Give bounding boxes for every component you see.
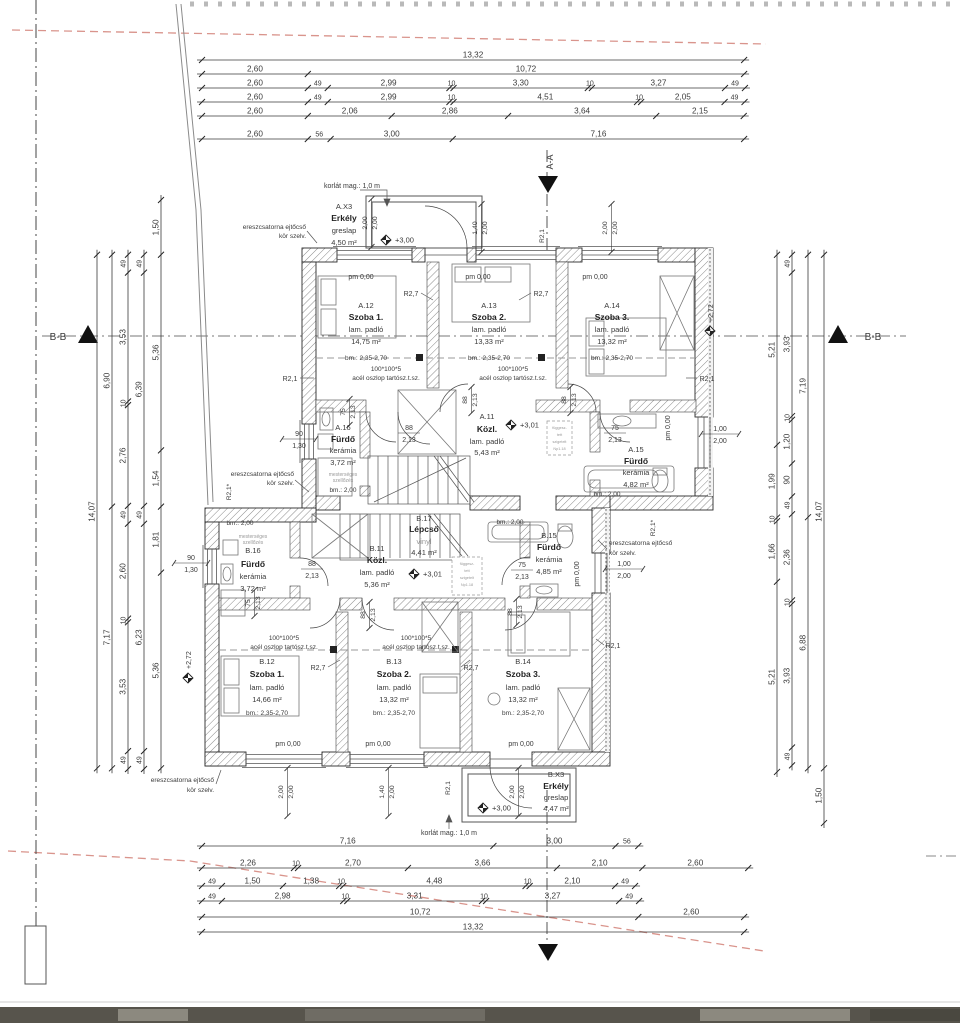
room-label: Szoba 3. [506, 669, 540, 679]
room-label: bm.: 2,00 [226, 520, 253, 527]
dim-vpair: 2,13 [571, 393, 578, 406]
dim-label: 5,36 [152, 662, 161, 678]
level-marker-icon [188, 678, 193, 683]
dim-vpair: 2,00 [372, 216, 379, 229]
dim-label: 10 [586, 81, 594, 88]
annotation-layer: 13,322,6010,722,60492,99103,30103,27492,… [50, 51, 882, 936]
room-label: 4,47 m² [543, 804, 569, 813]
annotation-text: R2,1 [539, 229, 546, 243]
annotation-text: pm 0,00 [665, 415, 672, 440]
dim-vpair: 2,00 [509, 785, 516, 798]
room-label: lam. padló [470, 437, 505, 446]
room-label: greslap [332, 226, 357, 235]
dim-label: 10 [341, 894, 349, 901]
room-label: 14,75 m² [351, 337, 381, 346]
dim-frac: 1,00 [713, 426, 727, 433]
dim-label: 49 [731, 81, 739, 88]
dim-label: 4,51 [537, 93, 553, 102]
floor-plan-page: 13,322,6010,722,60492,99103,30103,27492,… [0, 0, 960, 1023]
dim-label: 2,26 [240, 859, 256, 868]
dim-vpair: 2,13 [472, 393, 479, 406]
annotation-text: R2,1 [283, 376, 298, 383]
dim-label: 49 [121, 511, 128, 519]
dim-label: 2,10 [564, 877, 580, 886]
room-label: B.16 [245, 546, 260, 555]
dim-label: 1,81 [152, 531, 161, 547]
room-label: Fürdő [624, 456, 648, 466]
annotation-text: R2,7 [464, 665, 479, 672]
dim-label: 14,07 [815, 501, 824, 522]
annotation-text: B-B [50, 332, 67, 343]
dim-frac: 90 [295, 431, 303, 438]
dim-label: 5,21 [768, 341, 777, 357]
dim-label: 2,60 [687, 859, 703, 868]
room-label: B.X3 [548, 770, 564, 779]
annotation-text: kör szelv. [187, 787, 214, 794]
dim-label: 1,50 [244, 877, 260, 886]
dim-label: 49 [314, 95, 322, 102]
room-label: 4,41 m² [411, 548, 437, 557]
room-label: lam. padló [360, 568, 395, 577]
section-arrow-bb-right [828, 325, 848, 343]
dim-label: 6,88 [799, 634, 808, 650]
door-arc-b12 [310, 598, 340, 628]
dim-vpair: 2,00 [362, 216, 369, 229]
dim-label: 49 [208, 879, 216, 886]
level-marker-icon [506, 420, 511, 425]
toilet [652, 470, 668, 492]
dim-label: 3,00 [546, 837, 562, 846]
dim-label: 2,05 [675, 93, 691, 102]
room-label: kerámia [623, 468, 651, 477]
dim-label: 7,16 [340, 837, 356, 846]
bed [420, 674, 460, 748]
tiny-note-text: Np1.18 [553, 447, 565, 451]
dim-vpair: 75 [245, 599, 252, 607]
level-label: +3,00 [492, 804, 511, 813]
window-west-a16 [300, 420, 314, 463]
room-label: Szoba 1. [250, 669, 284, 679]
dim-frac: 2,00 [617, 573, 631, 580]
annotation-text: korlát mag.: 1,0 m [324, 183, 380, 190]
room-label: lam. padló [595, 325, 630, 334]
dim-label: 2,70 [345, 859, 361, 868]
dim-label: 49 [621, 879, 629, 886]
dim-label: 3,66 [474, 859, 490, 868]
room-label: lam. padló [377, 683, 412, 692]
room-label: B.14 [515, 657, 530, 666]
dim-label: 10 [337, 879, 345, 886]
door-arc-balcony-a [425, 206, 467, 248]
dim-frac: 2,00 [713, 438, 727, 445]
dim-label: 6,90 [103, 372, 112, 388]
level-marker-icon [414, 574, 419, 579]
annotation-text: pm 0,00 [365, 741, 390, 748]
dim-label: 3,93 [783, 667, 792, 683]
dim-frac: 2,13 [608, 437, 622, 444]
room-label: 13,32 m² [379, 695, 409, 704]
dim-label: 14,07 [88, 501, 97, 522]
room-label: lam. padló [506, 683, 541, 692]
room-label: B.13 [386, 657, 401, 666]
annotation-text: acél oszlop tartósz.t.sz. [382, 644, 450, 651]
annotation-text: pm 0,00 [574, 561, 581, 586]
dim-label: 7,17 [103, 629, 112, 645]
dim-label: 49 [137, 511, 144, 519]
annotation-text: 100*100*5 [269, 635, 300, 642]
dim-label: 49 [785, 752, 792, 760]
door-arc-a16 [366, 412, 396, 442]
dim-vpair: 2,13 [350, 405, 357, 418]
annotation-text: R2,7 [404, 291, 419, 298]
dim-label: 6,39 [135, 381, 144, 397]
level-marker-icon [183, 673, 188, 678]
dim-label: 10 [292, 861, 300, 868]
annotation-text: pm 0,00 [465, 274, 490, 281]
tiny-note-text: Np1.18 [461, 583, 473, 587]
level-label: +3,01 [423, 570, 442, 579]
dim-label: 49 [785, 260, 792, 268]
room-label: bm.: 2,35-2,70 [591, 355, 633, 362]
room-label: B.12 [259, 657, 274, 666]
dim-frac: 2,13 [305, 573, 319, 580]
dim-label: 10 [635, 95, 643, 102]
dim-label: 13,32 [463, 923, 484, 932]
section-arrow-aa-top [538, 176, 558, 193]
tiny-note-text: függesz- [552, 426, 567, 430]
dim-label: 1,50 [152, 219, 161, 235]
room-label: bm.: 2,35-2,70 [502, 710, 544, 717]
dim-label: 3,53 [119, 329, 128, 345]
window-south-b12 [242, 755, 326, 768]
dim-label: 5,36 [152, 344, 161, 360]
dim-label: 2,86 [442, 107, 458, 116]
dim-label: 10,72 [410, 908, 431, 917]
dim-frac: 88 [308, 561, 316, 568]
dim-label: 2,98 [275, 892, 291, 901]
annotation-text: R2,1* [226, 483, 233, 500]
room-label: A.14 [604, 301, 619, 310]
steel-column [416, 354, 423, 361]
dim-vpair: 88 [507, 608, 514, 616]
window-north-a14 [578, 247, 662, 260]
dim-frac: 88 [405, 425, 413, 432]
dim-label: 2,06 [342, 107, 358, 116]
dim-label: 49 [625, 894, 633, 901]
steel-column [538, 354, 545, 361]
tiny-note-text: szigetelt [460, 576, 475, 580]
dim-vpair: 2,00 [612, 221, 619, 234]
dim-label: 2,60 [247, 107, 263, 116]
dim-vpair: 75 [340, 408, 347, 416]
dim-label: 90 [783, 475, 792, 485]
room-label: 5,36 m² [364, 580, 390, 589]
dim-label: 2,36 [783, 549, 792, 565]
dim-label: 49 [121, 756, 128, 764]
annotation-text: acél oszlop tartósz.t.sz. [352, 375, 420, 382]
room-label: kerámia [536, 555, 564, 564]
dim-vpair: 1,40 [472, 221, 479, 234]
annotation-text: korlát mag.: 1,0 m [421, 830, 477, 837]
dim-label: 4,48 [426, 877, 442, 886]
annotation-text: acél oszlop tartósz.t.sz. [250, 644, 318, 651]
room-label: A.11 [480, 412, 495, 421]
section-arrow-bb-left [78, 325, 98, 343]
annotation-text: pm 0,00 [275, 741, 300, 748]
room-label: kerámia [240, 572, 268, 581]
dim-label: 7,16 [590, 130, 606, 139]
room-label: Lépcső [409, 524, 439, 534]
room-label: Szoba 3. [595, 312, 629, 322]
room-label: B.11 [370, 544, 385, 553]
room-label: A.16 [335, 423, 350, 432]
dim-vpair: 2,13 [370, 608, 377, 621]
dim-label: 1,66 [768, 543, 777, 559]
annotation-text: pm 0,00 [582, 274, 607, 281]
room-label: A.13 [481, 301, 496, 310]
dim-vpair: 88 [360, 611, 367, 619]
dim-label: 2,60 [247, 79, 263, 88]
dim-label: 2,60 [119, 563, 128, 579]
room-label: 5,43 m² [474, 448, 500, 457]
dim-label: 3,31 [407, 892, 423, 901]
dim-label: 10 [448, 81, 456, 88]
dim-label: 6,23 [135, 629, 144, 645]
room-label: Fürdő [241, 559, 265, 569]
tiny-note-text: függesz- [460, 562, 475, 566]
dim-label: 49 [785, 501, 792, 509]
room-label: lam. padló [472, 325, 507, 334]
room-label: bm.: 2,35-2,70 [468, 355, 510, 362]
annotation-text: pm 0,00 [508, 741, 533, 748]
dim-vpair: 88 [561, 396, 568, 404]
window-south-b13 [346, 755, 428, 768]
room-label: A.X3 [336, 202, 352, 211]
dim-vpair: 2,13 [517, 605, 524, 618]
dim-vpair: 2,00 [602, 221, 609, 234]
level-label: +2,72 [708, 304, 715, 322]
dim-label: 1,50 [815, 787, 824, 803]
dim-frac: 75 [611, 425, 619, 432]
dim-label: 49 [314, 81, 322, 88]
dim-label: 3,64 [574, 107, 590, 116]
annotation-text: R2,1 [700, 376, 715, 383]
dim-label: 49 [137, 756, 144, 764]
room-label: vinyl [416, 537, 431, 546]
annotation-text: A-A [545, 154, 555, 169]
annotation-text: 100*100*5 [498, 366, 529, 373]
room-label: 14,66 m² [252, 695, 282, 704]
chair [488, 693, 500, 705]
dim-label: 1,38 [303, 877, 319, 886]
room-label: A.15 [628, 445, 643, 454]
dim-label: 2,99 [381, 93, 397, 102]
dim-label: 3,93 [783, 336, 792, 352]
room-label: greslap [544, 793, 569, 802]
room-label: szellőzés [333, 478, 354, 484]
room-label: bm.: 2,00 [593, 491, 620, 498]
dim-label: 10 [448, 95, 456, 102]
annotation-text: kör szelv. [609, 550, 636, 557]
annotation-text: R2,7 [534, 291, 549, 298]
annotation-text: ereszcsatorna ejtőcső [609, 540, 673, 547]
dim-label: 10,72 [516, 65, 537, 74]
window-west-b16 [203, 545, 217, 588]
dim-label: 3,53 [119, 678, 128, 694]
tiny-note-text: szigetelt [553, 440, 568, 444]
annotation-text: 100*100*5 [401, 635, 432, 642]
dim-vpair: 2,00 [278, 785, 285, 798]
dim-label: 2,76 [119, 447, 128, 463]
dim-label: 1,99 [768, 473, 777, 489]
section-arrow-aa-bottom [538, 944, 558, 961]
dim-label: 2,15 [692, 107, 708, 116]
room-label: 4,82 m² [623, 480, 649, 489]
room-label: Fürdő [331, 434, 355, 444]
room-label: bm.: 2,35-2,70 [246, 710, 288, 717]
level-label: +3,00 [395, 236, 414, 245]
dim-label: 3,30 [513, 79, 529, 88]
dim-label: 2,60 [247, 93, 263, 102]
room-label: bm.: 2,35-2,70 [373, 710, 415, 717]
annotation-text: acél oszlop tartósz.t.sz. [479, 375, 547, 382]
dim-vpair: 1,40 [379, 785, 386, 798]
dim-frac: 2,13 [515, 574, 529, 581]
annotation-text: B-B [865, 332, 882, 343]
wardrobe [398, 390, 456, 454]
dim-label: 49 [208, 894, 216, 901]
room-label: Szoba 1. [349, 312, 383, 322]
room-label: lam. padló [349, 325, 384, 334]
annotation-text: R2,7 [311, 665, 326, 672]
dim-vpair: 2,00 [519, 785, 526, 798]
annotation-text: ereszcsatorna ejtőcső [243, 224, 307, 231]
dim-label: 2,60 [247, 65, 263, 74]
dim-vpair: 2,00 [288, 785, 295, 798]
annotation-text: R2,1 [445, 781, 452, 795]
level-label: +2,72 [186, 651, 193, 669]
annotation-text: ereszcsatorna ejtőcső [231, 471, 295, 478]
room-label: A.12 [358, 301, 373, 310]
room-label: 3,72 m² [330, 458, 356, 467]
room-label: Erkély [331, 213, 357, 223]
dim-frac: 2,13 [402, 437, 416, 444]
dim-vpair: 2,00 [482, 221, 489, 234]
dim-frac: 1,30 [292, 443, 306, 450]
annotation-text: R2,1* [650, 519, 657, 536]
level-marker-icon [386, 240, 391, 245]
annotation-text: ereszcsatorna ejtőcső [151, 777, 215, 784]
room-label: Szoba 2. [377, 669, 411, 679]
dim-label: 2,60 [683, 908, 699, 917]
dim-label: 2,99 [381, 79, 397, 88]
room-label: Fürdő [537, 542, 561, 552]
room-label: 13,32 m² [508, 695, 538, 704]
level-marker-icon [478, 803, 483, 808]
room-label: lam. padló [250, 683, 285, 692]
dim-frac: 75 [518, 562, 526, 569]
dim-frac: 90 [187, 555, 195, 562]
dim-frac: 1,00 [617, 561, 631, 568]
dim-label: 7,19 [799, 378, 808, 394]
dim-label: 49 [137, 260, 144, 268]
dim-vpair: 2,13 [255, 596, 262, 609]
room-label: bm.: 2,00 [329, 487, 356, 494]
dim-label: 1,54 [152, 470, 161, 486]
room-label: 13,33 m² [474, 337, 504, 346]
dim-frac: 1,30 [184, 567, 198, 574]
plot-boundary-lines [8, 0, 958, 984]
room-label: kerámia [330, 446, 358, 455]
level-marker-icon [511, 425, 516, 430]
room-label: 4,50 m² [331, 238, 357, 247]
level-marker-icon [381, 235, 386, 240]
dim-label: 56 [623, 839, 631, 846]
room-label: Erkély [543, 781, 569, 791]
room-label: Szoba 2. [472, 312, 506, 322]
annotation-text: kör szelv. [279, 233, 306, 240]
dim-label: 3,27 [545, 892, 561, 901]
dim-vpair: 88 [462, 396, 469, 404]
dim-label: 13,32 [463, 51, 484, 60]
level-marker-icon [409, 569, 414, 574]
room-label: Közl. [367, 555, 387, 565]
level-marker-icon [483, 808, 488, 813]
dim-label: 49 [731, 95, 739, 102]
dim-label: 2,60 [247, 130, 263, 139]
wardrobe [558, 688, 590, 750]
annotation-text: kör szelv. [267, 480, 294, 487]
dim-label: 3,00 [384, 130, 400, 139]
steel-column [330, 646, 337, 653]
room-label: B.15 [541, 531, 556, 540]
dim-label: 2,10 [592, 859, 608, 868]
room-label: B.17 [416, 514, 431, 523]
dim-label: 1,20 [783, 433, 792, 449]
dim-label: 10 [480, 894, 488, 901]
dim-label: 10 [524, 879, 532, 886]
annotation-text: R2,1 [606, 643, 621, 650]
dim-label: 56 [315, 132, 323, 139]
room-label: bm.: 2,00 [496, 519, 523, 526]
room-label: bm.: 2,35-2,70 [345, 355, 387, 362]
room-label: Közl. [477, 424, 497, 434]
floor-plan-svg: 13,322,6010,722,60492,99103,30103,27492,… [0, 0, 960, 1023]
room-label: 13,32 m² [597, 337, 627, 346]
level-label: +3,01 [520, 421, 539, 430]
wardrobe [660, 276, 694, 350]
annotation-text: 100*100*5 [371, 366, 402, 373]
annotation-text: pm 0,00 [348, 274, 373, 281]
dim-label: 49 [121, 260, 128, 268]
staircase [340, 456, 474, 560]
room-label: 4,85 m² [536, 567, 562, 576]
dim-label: 5,21 [768, 668, 777, 684]
dim-vpair: 2,00 [389, 785, 396, 798]
dim-label: 3,27 [650, 79, 666, 88]
balcony-a-x3 [366, 196, 482, 248]
